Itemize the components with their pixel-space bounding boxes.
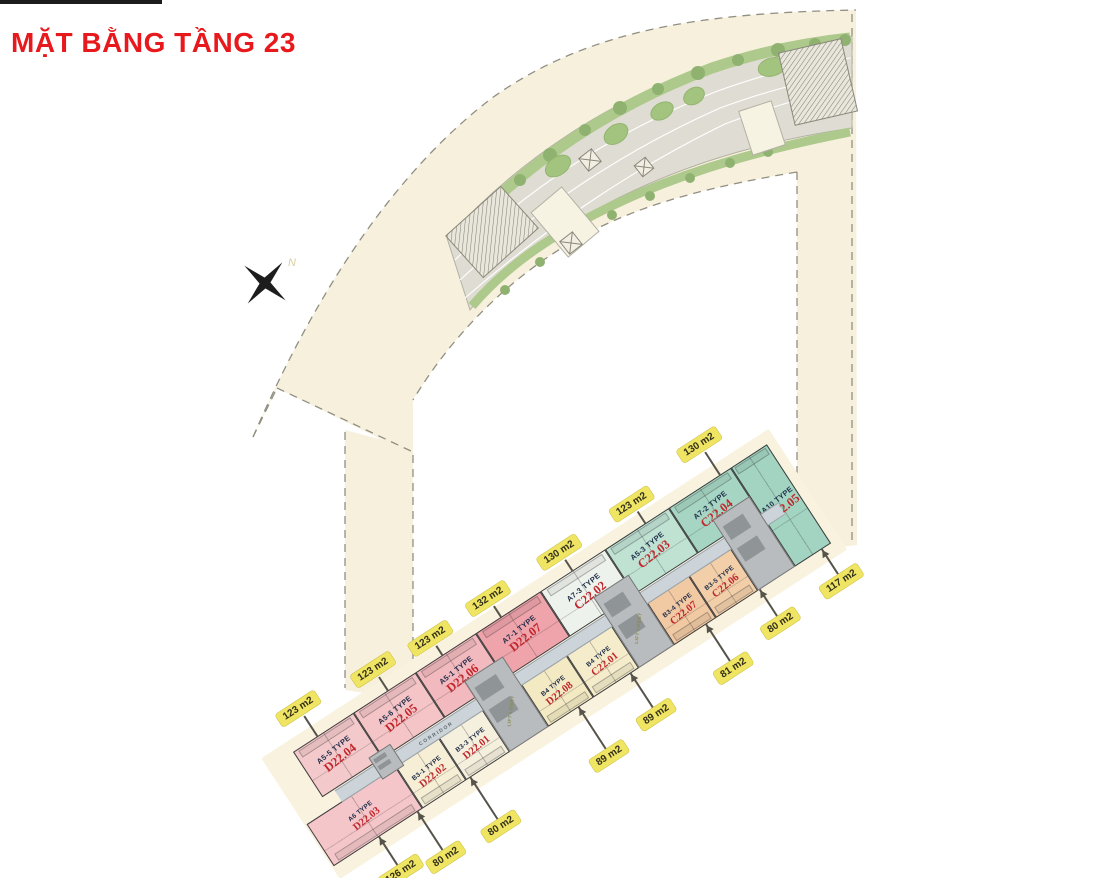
lift-lobby-label: LIFT LOBBY [506,695,515,727]
lift-lobby-label: LIFT LOBBY [634,612,643,644]
compass-north-label: N [288,257,296,269]
unit-label: B4 TYPEC22.01 [585,645,620,679]
site-plan-graphic: N [0,0,1120,878]
unit-label: B3-5 TYPEC22.06 [704,565,743,601]
unit-label: A5-5 TYPED22.04 [315,734,360,776]
unit-label: B3-4 TYPEC22.07 [662,592,701,628]
unit-label: A6 TYPED22.03 [347,800,382,834]
unit-label: B4 TYPED22.08 [540,674,575,708]
unit-label: B3-1 TYPED22.02 [411,755,450,791]
unit-label: B3-3 TYPED22.01 [455,727,494,763]
floor-plan-page: MẶT BẰNG TẦNG 23 [0,0,1120,878]
unit-label: A7-1 TYPED22.07 [500,614,545,656]
unit-label: A5-3 TYPEC22.03 [629,530,674,572]
unit-label: A5-6 TYPED22.05 [377,694,422,736]
